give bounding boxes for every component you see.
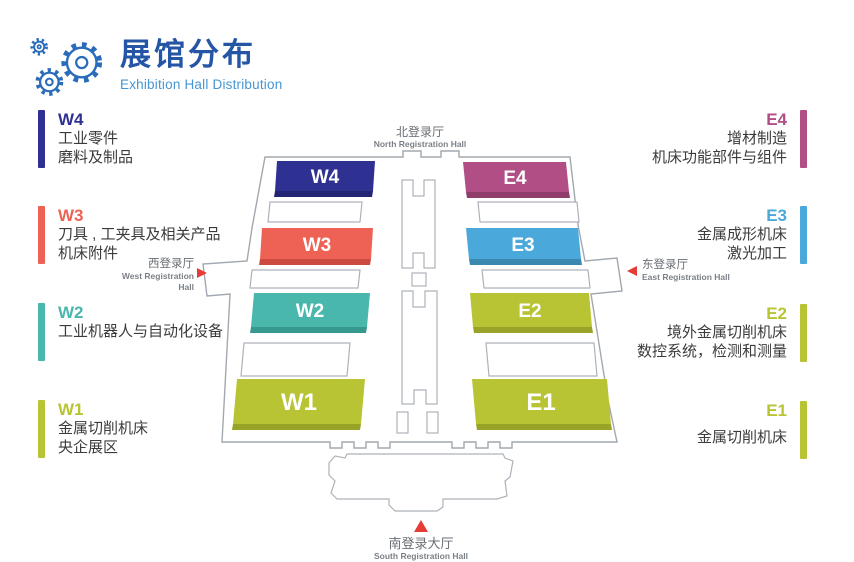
hall-shade [473, 327, 593, 333]
hall-desc-line: 机床功能部件与组件 [652, 148, 787, 167]
hall-shade [232, 424, 361, 430]
hall-label: W1 [281, 389, 317, 416]
legend-color-bar [38, 110, 45, 168]
hall-shade [274, 191, 373, 197]
legend-color-bar [800, 401, 807, 459]
legend-item-e2: E2 境外金属切削机床 数控系统，检测和测量 [637, 304, 807, 362]
hall-w3: W3 [259, 228, 373, 265]
hall-label: E2 [518, 301, 541, 322]
hall-e2: E2 [470, 293, 593, 333]
hall-label: E1 [526, 389, 555, 416]
hall-code: E3 [697, 206, 787, 225]
hall-w4: W4 [274, 161, 375, 197]
legend-item-w4: W4 工业零件 磨料及制品 [38, 110, 133, 168]
hall-shade [476, 424, 612, 430]
south-entrance-en: South Registration Hall [350, 551, 492, 562]
hall-w1: W1 [232, 379, 365, 430]
hall-code: E4 [652, 110, 787, 129]
page-subtitle: Exhibition Hall Distribution [120, 77, 440, 92]
south-structure [329, 454, 513, 511]
legend-item-e3: E3 金属成形机床 激光加工 [697, 206, 807, 264]
south-entrance-zh: 南登录大厅 [350, 536, 492, 551]
east-entrance-zh: 东登录厅 [642, 259, 752, 272]
north-entrance-en: North Registration Hall [350, 139, 490, 150]
legend-item-w1: W1 金属切削机床 央企展区 [38, 400, 148, 458]
east-entrance-en: East Registration Hall [642, 272, 752, 283]
hall-code: W4 [58, 110, 133, 129]
hall-desc-line: 金属切削机床 [58, 419, 148, 438]
hall-label: W2 [296, 301, 325, 322]
hall-code: E1 [697, 401, 787, 420]
north-entrance-zh: 北登录厅 [350, 126, 490, 139]
legend-color-bar [800, 206, 807, 264]
floor-plan-map: W4 E4 W3 E3 W2 E2 W1 E1 [190, 140, 660, 520]
hall-desc-line: 金属成形机床 [697, 225, 787, 244]
triangle-up-icon [414, 520, 428, 532]
hall-label: E4 [503, 168, 527, 189]
legend-color-bar [38, 206, 45, 264]
hall-e4: E4 [463, 162, 570, 198]
hall-shade [250, 327, 367, 333]
east-entrance-label: 东登录厅 East Registration Hall [642, 259, 752, 283]
legend-color-bar [38, 400, 45, 458]
hall-shade [259, 259, 371, 265]
hall-code: W1 [58, 400, 148, 419]
hall-label: W4 [311, 167, 340, 188]
gears-icon [18, 32, 114, 106]
legend-item-e1: E1 金属切削机床 [697, 401, 807, 459]
west-entrance-zh: 西登录厅 [108, 258, 194, 271]
south-entrance-label: 南登录大厅 South Registration Hall [350, 536, 492, 562]
triangle-right-icon [197, 268, 207, 278]
legend-color-bar [800, 110, 807, 168]
hall-desc-line: 工业零件 [58, 129, 133, 148]
hall-shade [466, 192, 570, 198]
hall-desc-line: 磨料及制品 [58, 148, 133, 167]
hall-e3: E3 [466, 228, 582, 265]
north-entrance-label: 北登录厅 North Registration Hall [350, 126, 490, 150]
hall-e1: E1 [472, 379, 612, 430]
hall-desc-line: 央企展区 [58, 438, 148, 457]
hall-label: E3 [511, 235, 534, 256]
legend-color-bar [800, 304, 807, 362]
legend-color-bar [38, 303, 45, 361]
hall-w2: W2 [250, 293, 370, 333]
legend-item-e4: E4 增材制造 机床功能部件与组件 [652, 110, 807, 168]
page-title: 展馆分布 [120, 38, 440, 72]
hall-desc-line: 增材制造 [652, 129, 787, 148]
hall-label: W3 [303, 235, 332, 256]
hall-shade [469, 259, 582, 265]
west-entrance-en: West Registration Hall [108, 271, 194, 293]
west-entrance-label: 西登录厅 West Registration Hall [108, 258, 194, 293]
triangle-left-icon [627, 266, 637, 276]
hall-desc-line: 金属切削机床 [697, 428, 787, 447]
